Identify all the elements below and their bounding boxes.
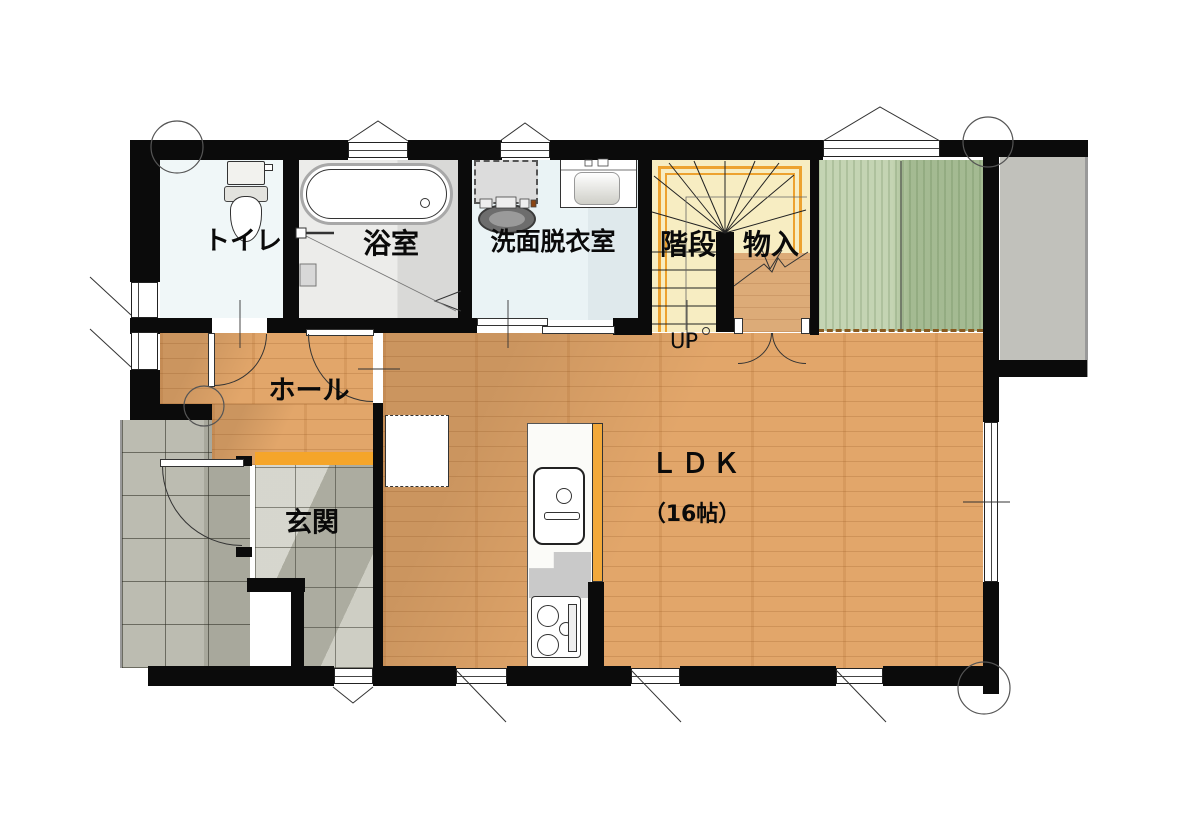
- washroom-label: 洗面脱衣室: [490, 222, 615, 258]
- entrance-step: [255, 452, 378, 465]
- toilet-handle: [264, 164, 273, 171]
- window-left-2: [131, 332, 158, 370]
- wall-top-b: [408, 140, 502, 160]
- wall-terrace-bottom: [995, 360, 1087, 377]
- wall-top-d: [940, 140, 1088, 157]
- bathtub-drain: [420, 198, 430, 208]
- wall-niche-right: [291, 578, 304, 672]
- storage-label: 物入: [743, 223, 799, 263]
- window-bottom-2: [456, 668, 507, 684]
- stairs-up-label: UP: [670, 329, 698, 353]
- green-closet-open-edge: [818, 329, 983, 332]
- window-entrance-bottom: [334, 668, 373, 684]
- hall-cabinet: [385, 415, 449, 487]
- wall-top-a: [145, 140, 348, 160]
- window-bottom-4: [836, 668, 883, 684]
- porch-edge: [120, 420, 122, 668]
- washroom-slider-1: [477, 318, 548, 326]
- stove-burner-1: [537, 605, 559, 627]
- window-left-1: [131, 282, 158, 318]
- washer-pan: [474, 160, 538, 204]
- bathtub-inner: [306, 169, 447, 219]
- awning-triangle-washroom: [500, 123, 550, 141]
- wall-bottom-e: [883, 666, 997, 686]
- wall-band-a: [160, 318, 212, 333]
- window-washroom-top: [500, 142, 550, 158]
- awning-triangle-bath: [348, 121, 408, 141]
- stove-burner-2: [537, 634, 559, 656]
- wall-stairs-hub: [716, 232, 734, 332]
- ldk-label: ＬＤＫ: [651, 442, 744, 481]
- wall-kitchen-stub: [588, 582, 604, 670]
- wall-porch-stub: [148, 404, 212, 420]
- wall-hall-ldk: [373, 403, 383, 672]
- wall-toilet-bath: [283, 160, 299, 333]
- window-green-top: [823, 140, 940, 157]
- awning-triangle-entrance: [333, 687, 373, 703]
- wall-bottom-d: [680, 666, 836, 686]
- window-slash-l1: [90, 277, 131, 315]
- wall-wash-stairs: [638, 160, 652, 335]
- awning-triangle-green: [823, 107, 940, 141]
- terrace-edge: [1085, 157, 1088, 377]
- ldk-size-label: （16帖）: [644, 496, 741, 528]
- kitchen-faucet: [556, 488, 572, 504]
- wall-left-a: [130, 140, 160, 282]
- kitchen-faucet-bar: [544, 512, 580, 520]
- wall-band-c: [613, 318, 652, 335]
- terrace: [1000, 157, 1085, 362]
- storage-door-leaf-r: [801, 318, 810, 334]
- wall-bath-wash: [458, 160, 472, 320]
- wall-bottom-b: [373, 666, 456, 686]
- vanity-basin: [574, 172, 620, 205]
- kitchen-counter-accent: [592, 423, 603, 582]
- toilet-tank: [227, 161, 265, 185]
- hall-label: ホール: [269, 369, 350, 408]
- stove-grill: [568, 604, 577, 652]
- wall-bottom-a: [148, 666, 334, 686]
- floor-plan: トイレ 浴室 洗面脱衣室 階段 物入 UP ホール 玄関 ＬＤＫ （16帖）: [0, 0, 1200, 825]
- washroom-slider-2: [542, 326, 615, 334]
- bathroom-label: 浴室: [363, 222, 419, 262]
- wall-right-a: [983, 157, 999, 422]
- shoe-niche: [253, 592, 291, 668]
- wall-bottom-c: [507, 666, 631, 686]
- window-slash-l2: [90, 329, 131, 367]
- stairs-label: 階段: [660, 223, 716, 263]
- toilet-label: トイレ: [204, 221, 282, 258]
- wall-right-b: [983, 582, 999, 694]
- wall-stairs-green: [810, 157, 819, 335]
- window-right-large: [984, 422, 998, 582]
- wall-top-c: [550, 140, 823, 160]
- storage-door-leaf-l: [734, 318, 743, 334]
- entrance-label: 玄関: [285, 501, 339, 540]
- window-bottom-3: [631, 668, 680, 684]
- green-closet: [818, 160, 983, 331]
- door-jamb-bottom: [236, 547, 252, 557]
- window-bath-top: [348, 142, 408, 158]
- kitchen-sink: [533, 467, 585, 545]
- storage-floor: [734, 253, 810, 332]
